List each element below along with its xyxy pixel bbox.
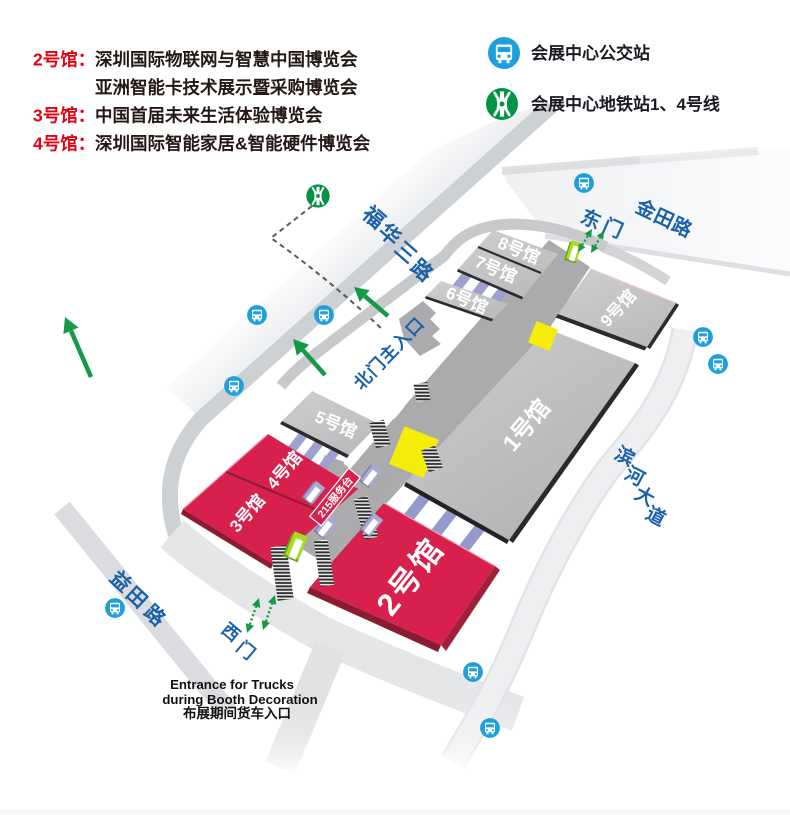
svg-text:3号馆：: 3号馆： <box>33 105 95 125</box>
svg-text:2号馆：: 2号馆： <box>33 49 95 69</box>
svg-text:中国首届未来生活体验博览会: 中国首届未来生活体验博览会 <box>95 105 323 125</box>
svg-text:4号馆：: 4号馆： <box>33 133 95 153</box>
svg-text:深圳国际物联网与智慧中国博览会: 深圳国际物联网与智慧中国博览会 <box>95 49 358 69</box>
svg-text:会展中心地铁站1、4号线: 会展中心地铁站1、4号线 <box>531 94 720 114</box>
svg-text:会展中心公交站: 会展中心公交站 <box>531 43 650 63</box>
svg-text:深圳国际智能家居&智能硬件博览会: 深圳国际智能家居&智能硬件博览会 <box>95 133 371 153</box>
svg-text:Entrance for Trucks: Entrance for Trucks <box>170 677 294 692</box>
svg-text:亚洲智能卡技术展示暨采购博览会: 亚洲智能卡技术展示暨采购博览会 <box>95 77 358 97</box>
svg-text:during Booth Decoration: during Booth Decoration <box>162 692 317 707</box>
svg-text:布展期间货车入口: 布展期间货车入口 <box>183 705 291 721</box>
